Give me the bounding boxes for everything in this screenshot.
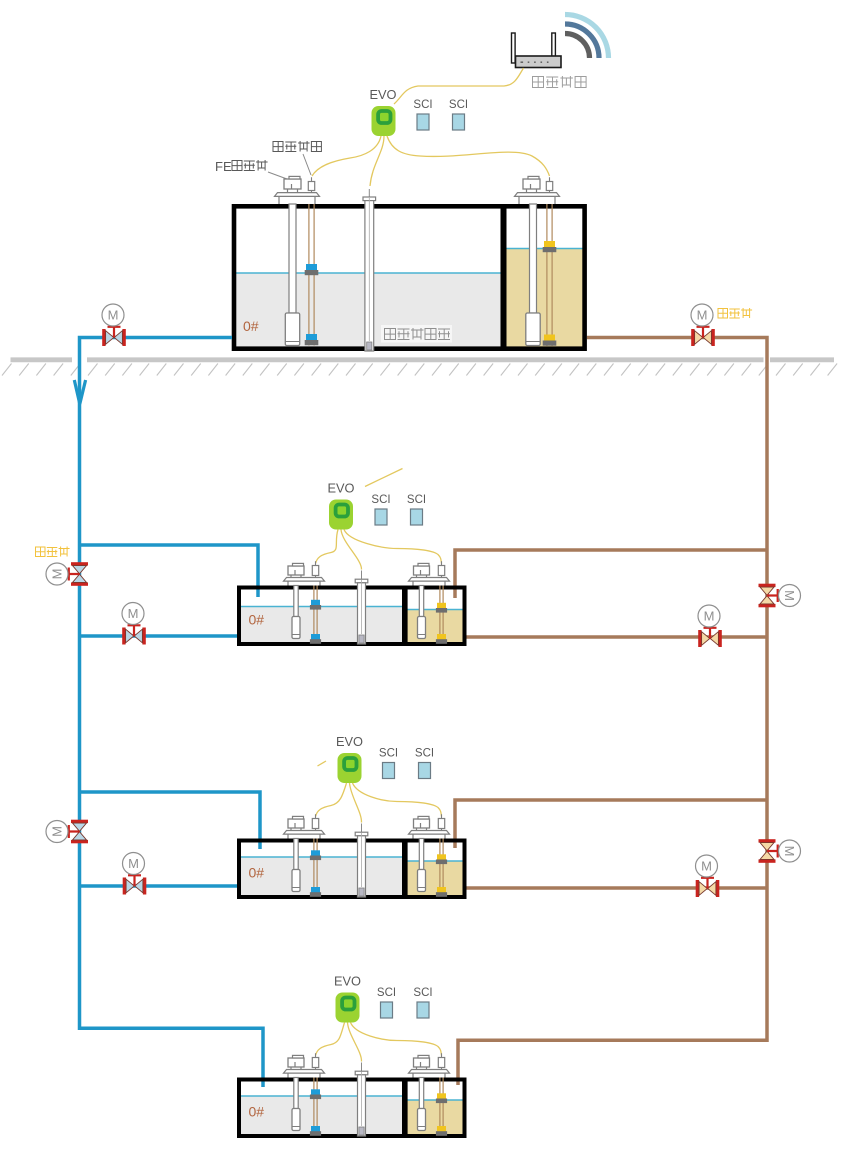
svg-text:M: M <box>782 590 797 601</box>
svg-text:EVO: EVO <box>369 87 396 102</box>
svg-text:M: M <box>49 569 64 580</box>
svg-text:M: M <box>128 606 139 621</box>
svg-text:SCI: SCI <box>379 748 398 760</box>
svg-text:0#: 0# <box>243 318 259 334</box>
svg-text:EVO: EVO <box>327 481 354 496</box>
svg-text:SCI: SCI <box>449 99 468 111</box>
svg-text:SCI: SCI <box>415 748 434 760</box>
svg-text:SCI: SCI <box>377 987 396 999</box>
svg-text:SCI: SCI <box>371 494 390 506</box>
svg-text:SCI: SCI <box>413 99 432 111</box>
svg-text:EVO: EVO <box>334 974 361 989</box>
svg-text:M: M <box>49 826 64 837</box>
svg-text:M: M <box>782 846 797 857</box>
svg-text:0#: 0# <box>249 1104 265 1120</box>
svg-text:0#: 0# <box>249 865 265 881</box>
svg-text:SCI: SCI <box>413 987 432 999</box>
svg-text:M: M <box>128 856 139 871</box>
svg-text:M: M <box>697 307 708 322</box>
svg-text:0#: 0# <box>249 612 265 628</box>
svg-text:M: M <box>108 307 119 322</box>
svg-text:SCI: SCI <box>407 494 426 506</box>
svg-text:FE: FE <box>215 159 232 174</box>
svg-text:M: M <box>701 858 712 873</box>
svg-text:M: M <box>704 608 715 623</box>
svg-text:EVO: EVO <box>336 734 363 749</box>
